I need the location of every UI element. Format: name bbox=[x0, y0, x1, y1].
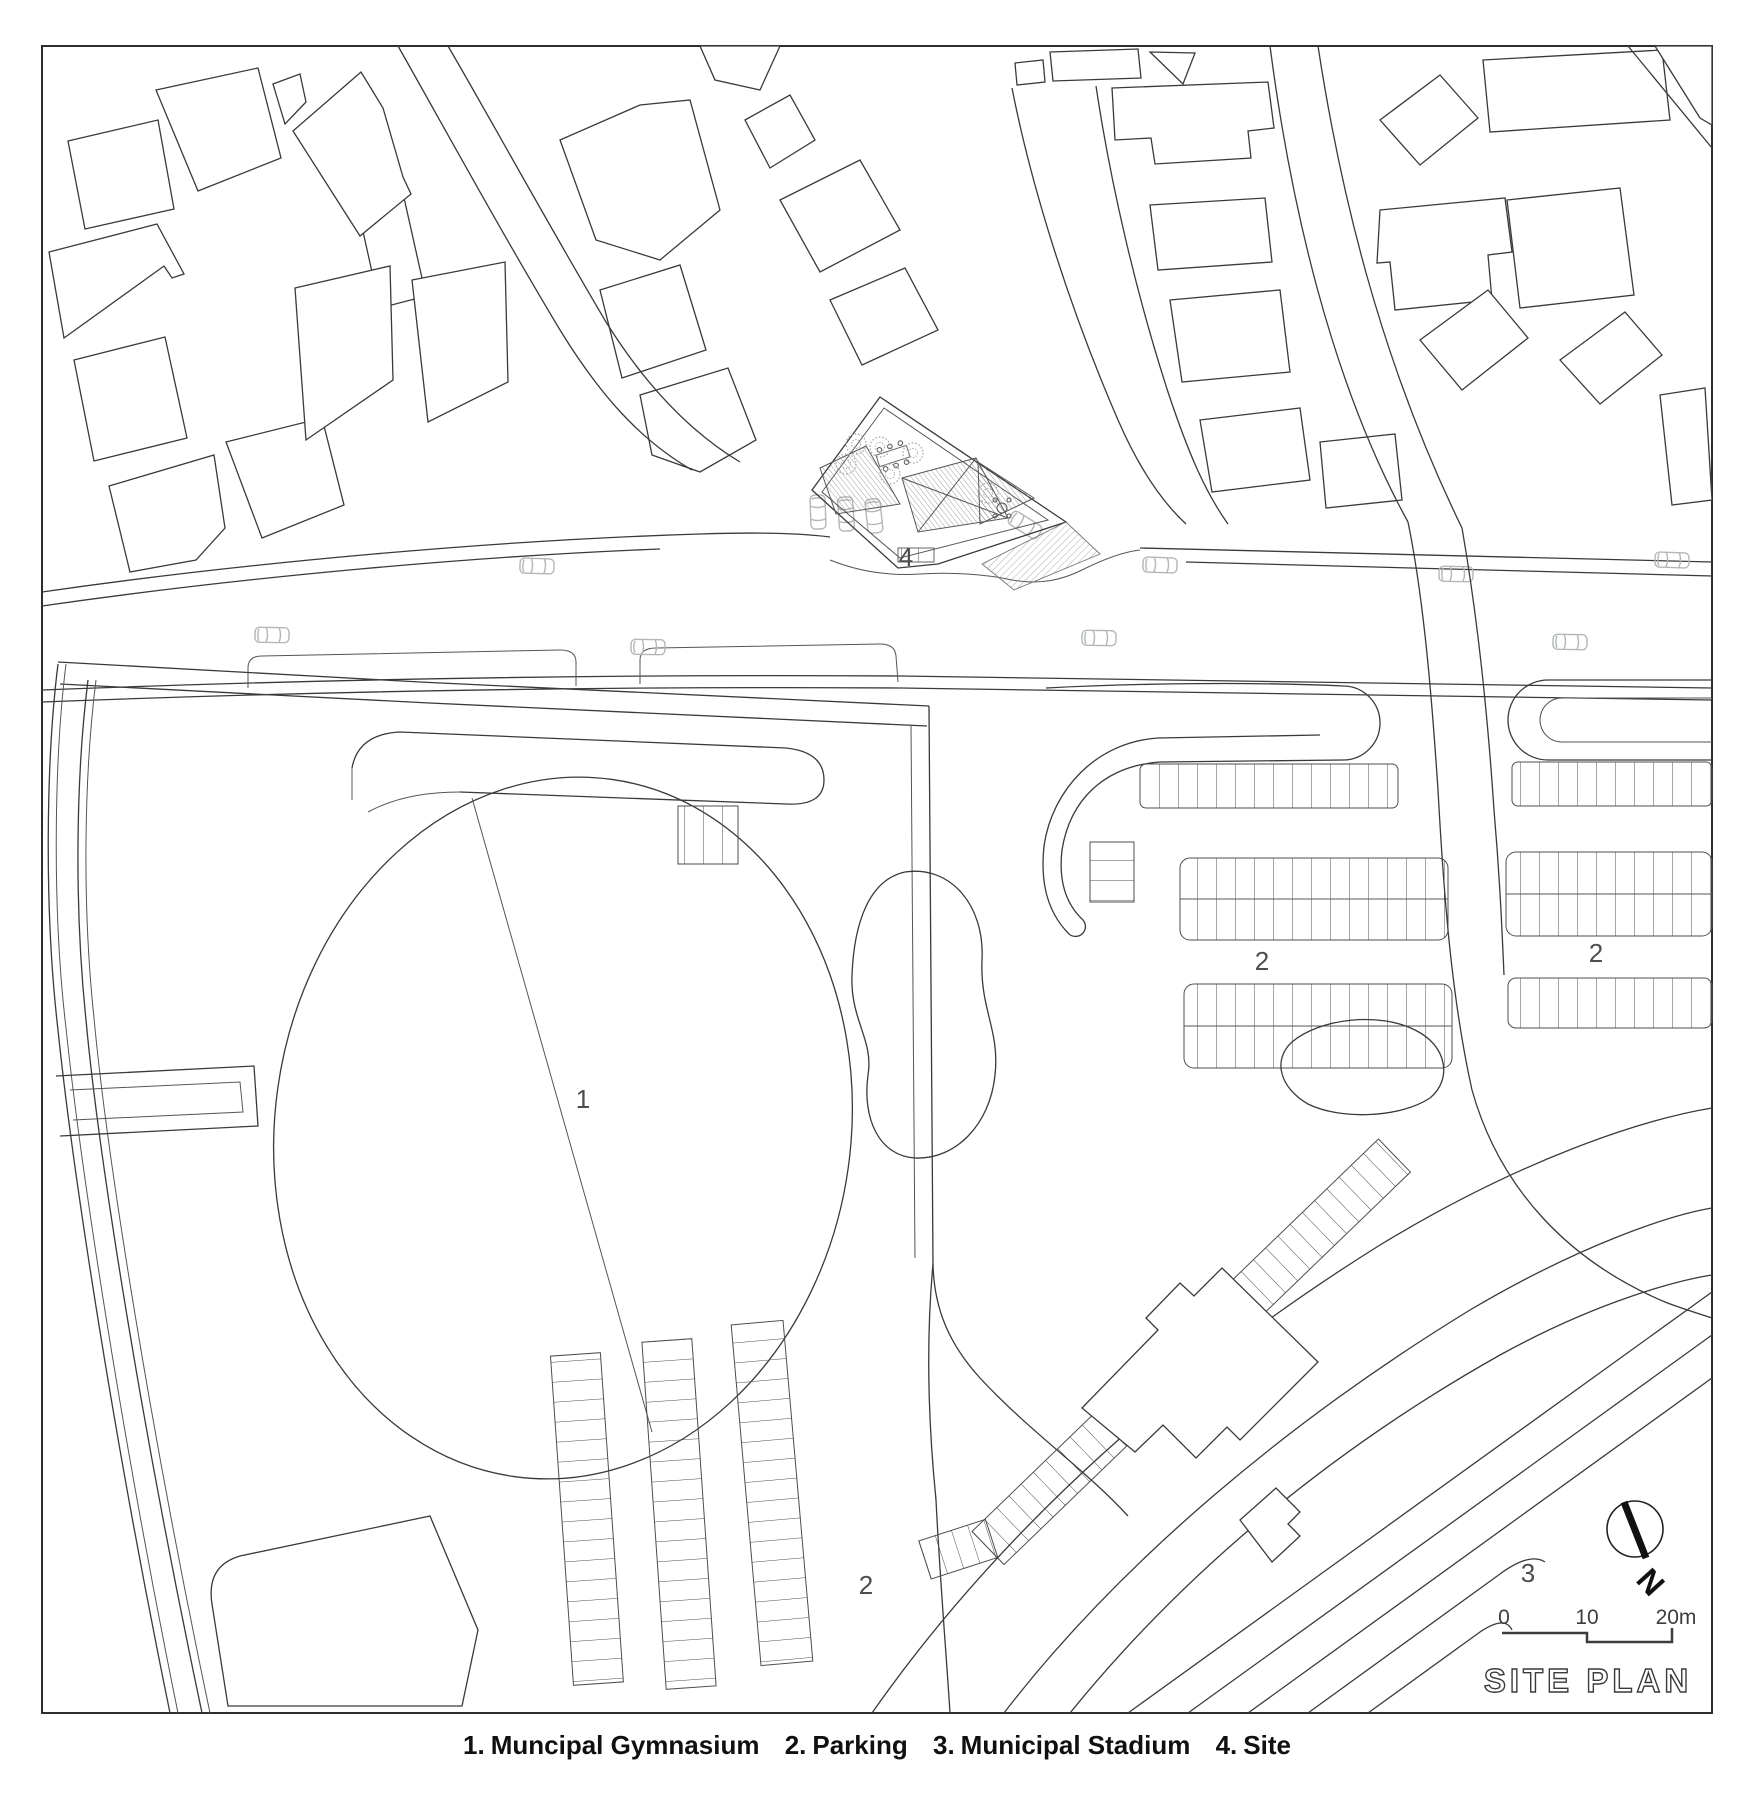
legend-item-gymnasium: 1.Muncipal Gymnasium bbox=[463, 1730, 759, 1760]
legend-item-site: 4.Site bbox=[1216, 1730, 1291, 1760]
label-stadium: 3 bbox=[1521, 1558, 1535, 1588]
scale-ten: 10 bbox=[1575, 1606, 1598, 1629]
plan-title: SITE PLAN bbox=[1484, 1662, 1692, 1699]
scale-twenty: 20m bbox=[1656, 1606, 1697, 1629]
legend: 1.Muncipal Gymnasium 2.Parking 3.Municip… bbox=[0, 1730, 1754, 1761]
site-plan-drawing: 4 1 2 bbox=[0, 0, 1754, 1799]
scale-zero: 0 bbox=[1498, 1606, 1510, 1629]
label-parking-mid: 2 bbox=[1255, 946, 1269, 976]
label-site: 4 bbox=[899, 542, 913, 572]
site-plan-page: 4 1 2 bbox=[0, 0, 1754, 1799]
legend-item-parking: 2.Parking bbox=[785, 1730, 908, 1760]
label-parking-bottom: 2 bbox=[859, 1570, 873, 1600]
legend-item-stadium: 3.Municipal Stadium bbox=[933, 1730, 1190, 1760]
label-parking-right: 2 bbox=[1589, 938, 1603, 968]
label-gymnasium: 1 bbox=[576, 1084, 590, 1114]
